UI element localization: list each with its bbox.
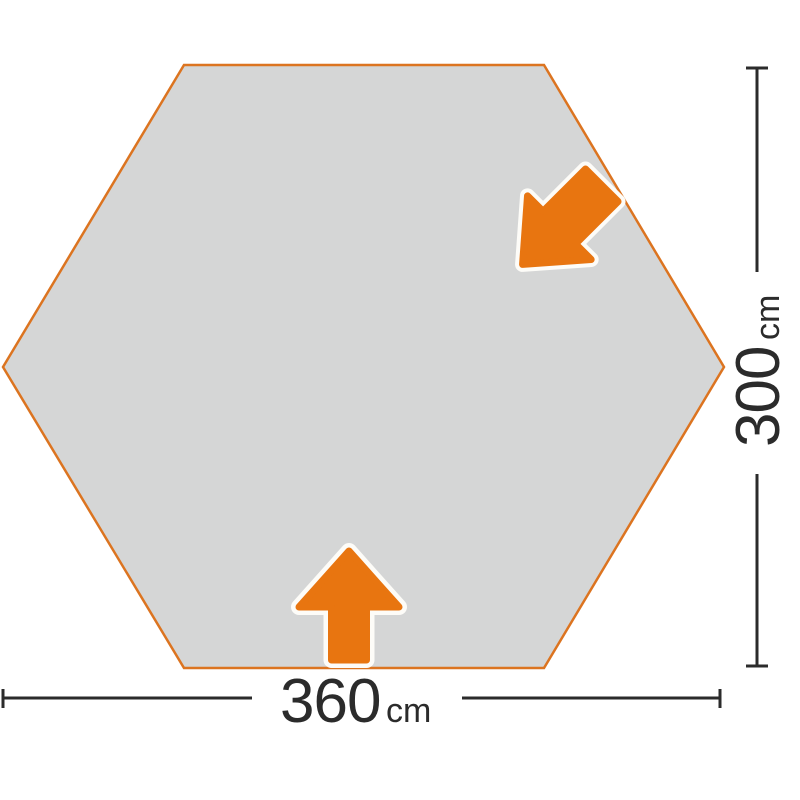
width-unit-label: cm [386,692,431,730]
width-value-label: 360 [280,667,380,736]
height-unit-label: cm [749,295,787,340]
width-dimension-label: 360 cm [280,667,431,736]
footprint-diagram-canvas: 360 cm 300 cm [0,0,800,800]
height-value-label: 300 [724,347,793,447]
height-dimension-label: 300 cm [724,295,793,447]
footprint-diagram: 360 cm 300 cm [0,0,800,800]
